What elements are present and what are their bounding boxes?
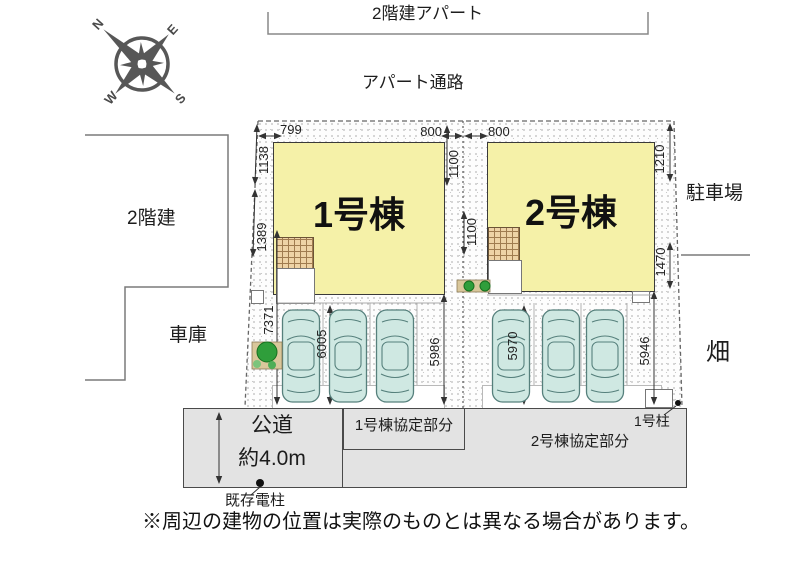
dim-1138: 1138 <box>257 140 271 180</box>
dim-1100-lower: 1100 <box>465 212 479 252</box>
pole1-label: 1号柱 <box>634 414 670 429</box>
parking-lot-label: 駐車場 <box>686 184 743 205</box>
compass-s-label: S <box>172 90 189 107</box>
garage-label: 車庫 <box>169 326 207 347</box>
apartment-path-label: アパート通路 <box>362 74 464 93</box>
dim-800-b1: 800 <box>402 125 442 139</box>
existing-pole-label: 既存電柱 <box>225 493 285 510</box>
compass-rose: N E S W <box>57 0 219 142</box>
public-road-label: 公道 <box>232 414 312 437</box>
dim-6005: 6005 <box>315 324 329 364</box>
dim-1470: 1470 <box>654 242 668 282</box>
dim-5946: 5946 <box>638 331 652 371</box>
dim-1100-upper: 1100 <box>447 144 461 184</box>
parked-cars <box>283 310 624 402</box>
road-width-label: 約4.0m <box>222 447 322 470</box>
dim-5986: 5986 <box>428 332 442 372</box>
b2-agreement-label: 2号棟協定部分 <box>505 434 655 451</box>
tree-icon <box>252 342 282 369</box>
site-plan: 1号棟 2号棟 <box>0 0 800 564</box>
compass-n-label: N <box>89 16 106 33</box>
b1-agreement-label: 1号棟協定部分 <box>343 418 465 435</box>
apartment-label: 2階建アパート <box>372 5 483 24</box>
pole1-dot <box>675 400 681 406</box>
dim-799: 799 <box>280 123 320 137</box>
dim-1389: 1389 <box>255 217 269 257</box>
compass-e-label: E <box>164 21 181 38</box>
disclaimer-note: ※周辺の建物の位置は実際のものとは異なる場合があります。 <box>142 511 700 533</box>
bush-icons <box>457 280 490 292</box>
dim-5970: 5970 <box>506 326 520 366</box>
field-label: 畑 <box>706 340 730 366</box>
two-story-label: 2階建 <box>127 209 176 230</box>
dim-800-b2: 800 <box>488 125 528 139</box>
dim-1210: 1210 <box>653 139 667 179</box>
dim-7371: 7371 <box>262 300 276 340</box>
existing-pole-dot <box>256 479 264 487</box>
